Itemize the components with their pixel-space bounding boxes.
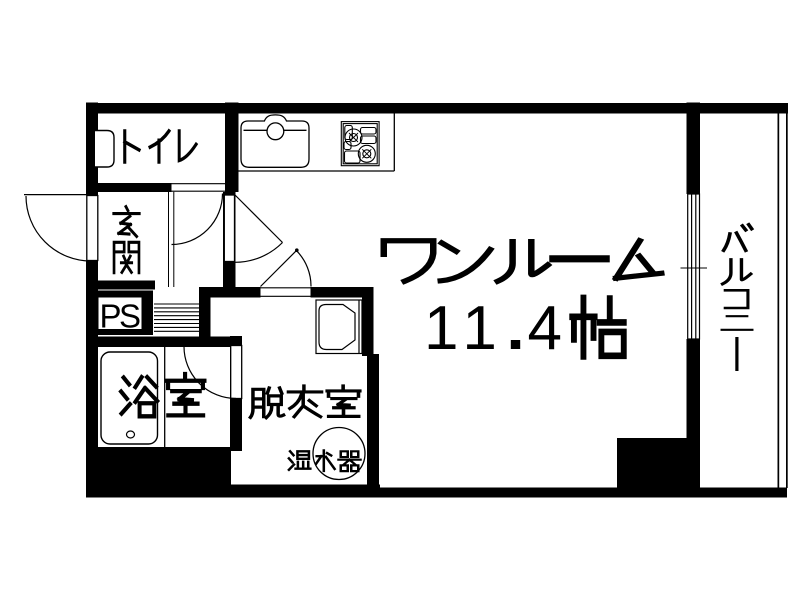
svg-text:PS: PS <box>100 298 141 335</box>
svg-text:11: 11 <box>424 294 505 363</box>
svg-text:4: 4 <box>528 294 562 363</box>
